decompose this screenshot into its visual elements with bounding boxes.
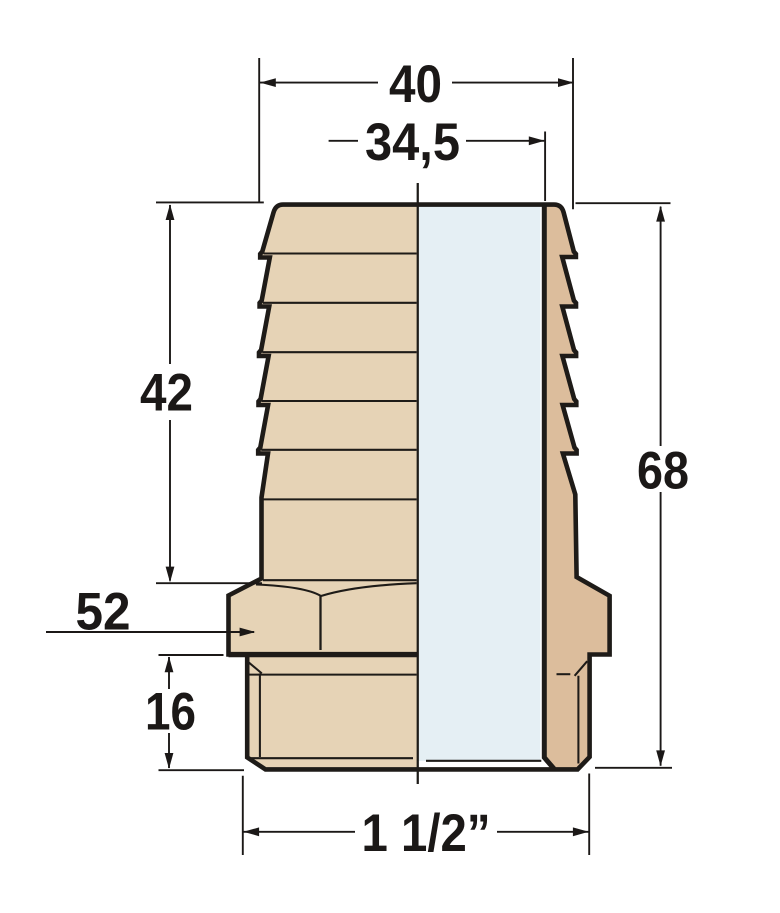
svg-text:34,5: 34,5 <box>365 113 460 172</box>
svg-text:68: 68 <box>637 441 689 500</box>
svg-text:42: 42 <box>140 363 193 422</box>
svg-text:52: 52 <box>76 582 131 641</box>
svg-text:1 1/2”: 1 1/2” <box>362 804 491 863</box>
svg-text:16: 16 <box>145 682 196 741</box>
svg-text:40: 40 <box>389 55 442 114</box>
